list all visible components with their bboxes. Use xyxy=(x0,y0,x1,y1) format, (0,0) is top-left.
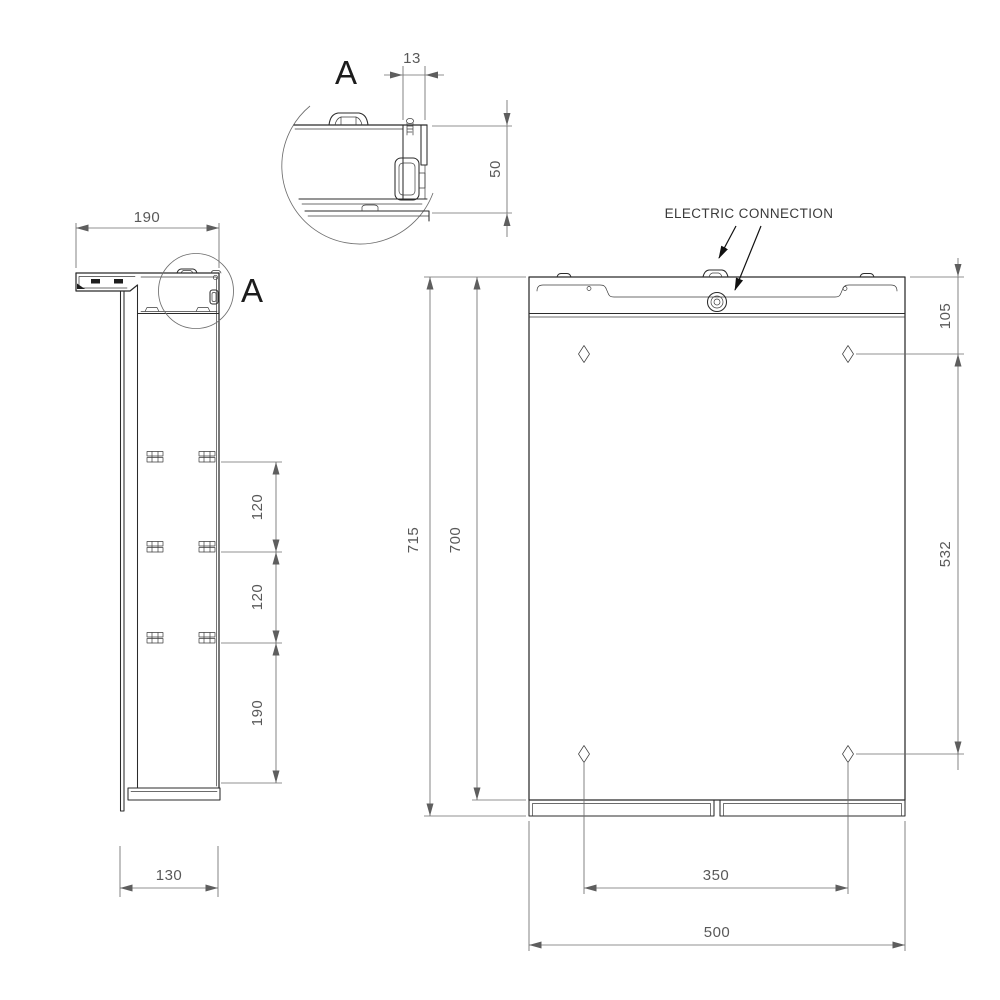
dim532-value: 532 xyxy=(937,541,954,568)
dim13-value: 13 xyxy=(403,50,421,67)
dim50-value: 50 xyxy=(487,160,504,178)
drawing-canvas: 13 50 A xyxy=(0,0,1000,1000)
detail-title-label: A xyxy=(335,54,357,91)
dim500-value: 500 xyxy=(704,924,731,941)
side-canopy-clip-2 xyxy=(114,279,123,284)
dim120b-value: 120 xyxy=(249,584,266,611)
dim700-value: 700 xyxy=(447,527,464,554)
dim105-value: 105 xyxy=(937,303,954,330)
dim130-value: 130 xyxy=(156,867,183,884)
technical-drawing-page: 13 50 A xyxy=(0,0,1000,1000)
electric-connection-label: ELECTRIC CONNECTION xyxy=(665,206,834,221)
dim350-value: 350 xyxy=(703,867,730,884)
dim190b-value: 190 xyxy=(249,700,266,727)
dim715-value: 715 xyxy=(405,527,422,554)
dim190top-value: 190 xyxy=(134,209,161,226)
detail-callout-label: A xyxy=(241,272,263,309)
dim120a-value: 120 xyxy=(249,494,266,521)
page-background xyxy=(0,0,1000,1000)
side-canopy-clip-1 xyxy=(91,279,100,284)
